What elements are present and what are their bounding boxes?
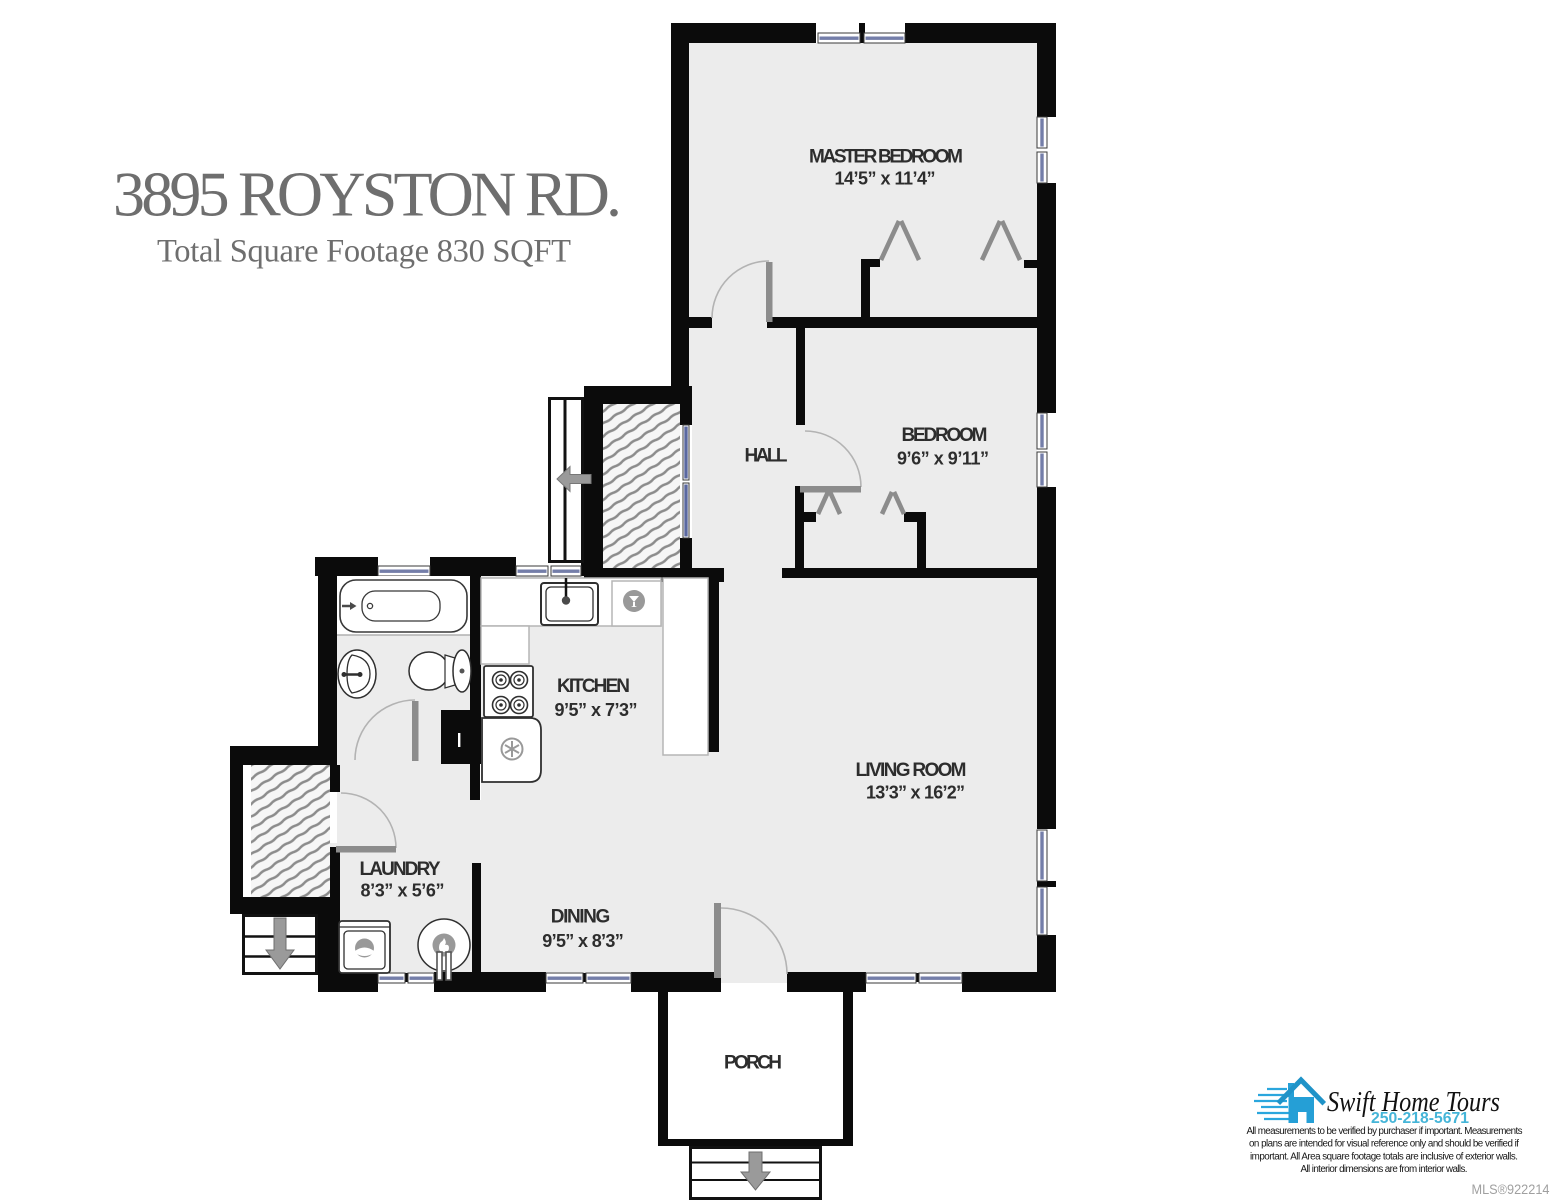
svg-text:Total Square Footage 830 SQFT: Total Square Footage 830 SQFT — [157, 234, 571, 270]
svg-text:14’5” x 11’4”: 14’5” x 11’4” — [835, 169, 936, 189]
svg-text:3895 ROYSTON RD.: 3895 ROYSTON RD. — [113, 159, 622, 230]
svg-text:important. All Area square foo: important. All Area square footage total… — [1250, 1151, 1518, 1162]
svg-text:LIVING ROOM: LIVING ROOM — [856, 760, 967, 781]
svg-text:PORCH: PORCH — [724, 1053, 782, 1074]
svg-text:LAUNDRY: LAUNDRY — [360, 859, 441, 880]
svg-text:DINING: DINING — [551, 907, 611, 928]
svg-text:All measurements to be verifie: All measurements to be verified by purch… — [1247, 1126, 1523, 1137]
svg-text:9’5” x 7’3”: 9’5” x 7’3” — [555, 700, 638, 720]
svg-text:250-218-5671: 250-218-5671 — [1371, 1110, 1469, 1127]
svg-text:MLS®922214: MLS®922214 — [1472, 1181, 1550, 1197]
svg-text:KITCHEN: KITCHEN — [557, 676, 630, 697]
svg-text:13’3” x 16’2”: 13’3” x 16’2” — [866, 783, 965, 803]
svg-text:BEDROOM: BEDROOM — [902, 425, 988, 446]
svg-text:HALL: HALL — [745, 446, 788, 467]
svg-text:9’5” x 8’3”: 9’5” x 8’3” — [542, 931, 624, 951]
svg-text:on plans are intended for visu: on plans are intended for visual referen… — [1249, 1139, 1519, 1150]
svg-text:9’6” x 9’11”: 9’6” x 9’11” — [897, 449, 989, 469]
svg-text:8’3” x 5’6”: 8’3” x 5’6” — [361, 881, 445, 901]
svg-text:MASTER BEDROOM: MASTER BEDROOM — [809, 147, 963, 168]
svg-text:All interior dimensions are fr: All interior dimensions are from interio… — [1301, 1164, 1468, 1175]
